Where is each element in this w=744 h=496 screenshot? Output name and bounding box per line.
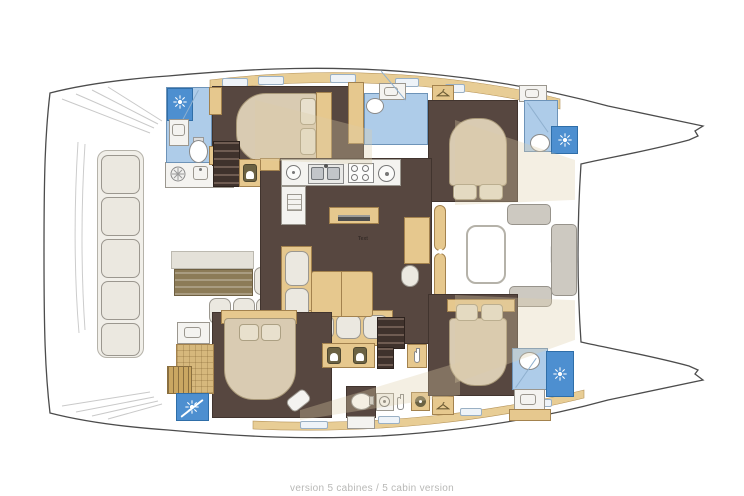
catamaran-floorplan: Text bbox=[0, 0, 744, 496]
roof-shadow bbox=[255, 100, 372, 165]
roof-shadow bbox=[455, 295, 575, 383]
roof-shadow bbox=[455, 120, 575, 205]
overlays bbox=[0, 0, 744, 496]
roof-shadow bbox=[300, 362, 460, 420]
caption: version 5 cabines / 5 cabin version bbox=[0, 483, 744, 494]
